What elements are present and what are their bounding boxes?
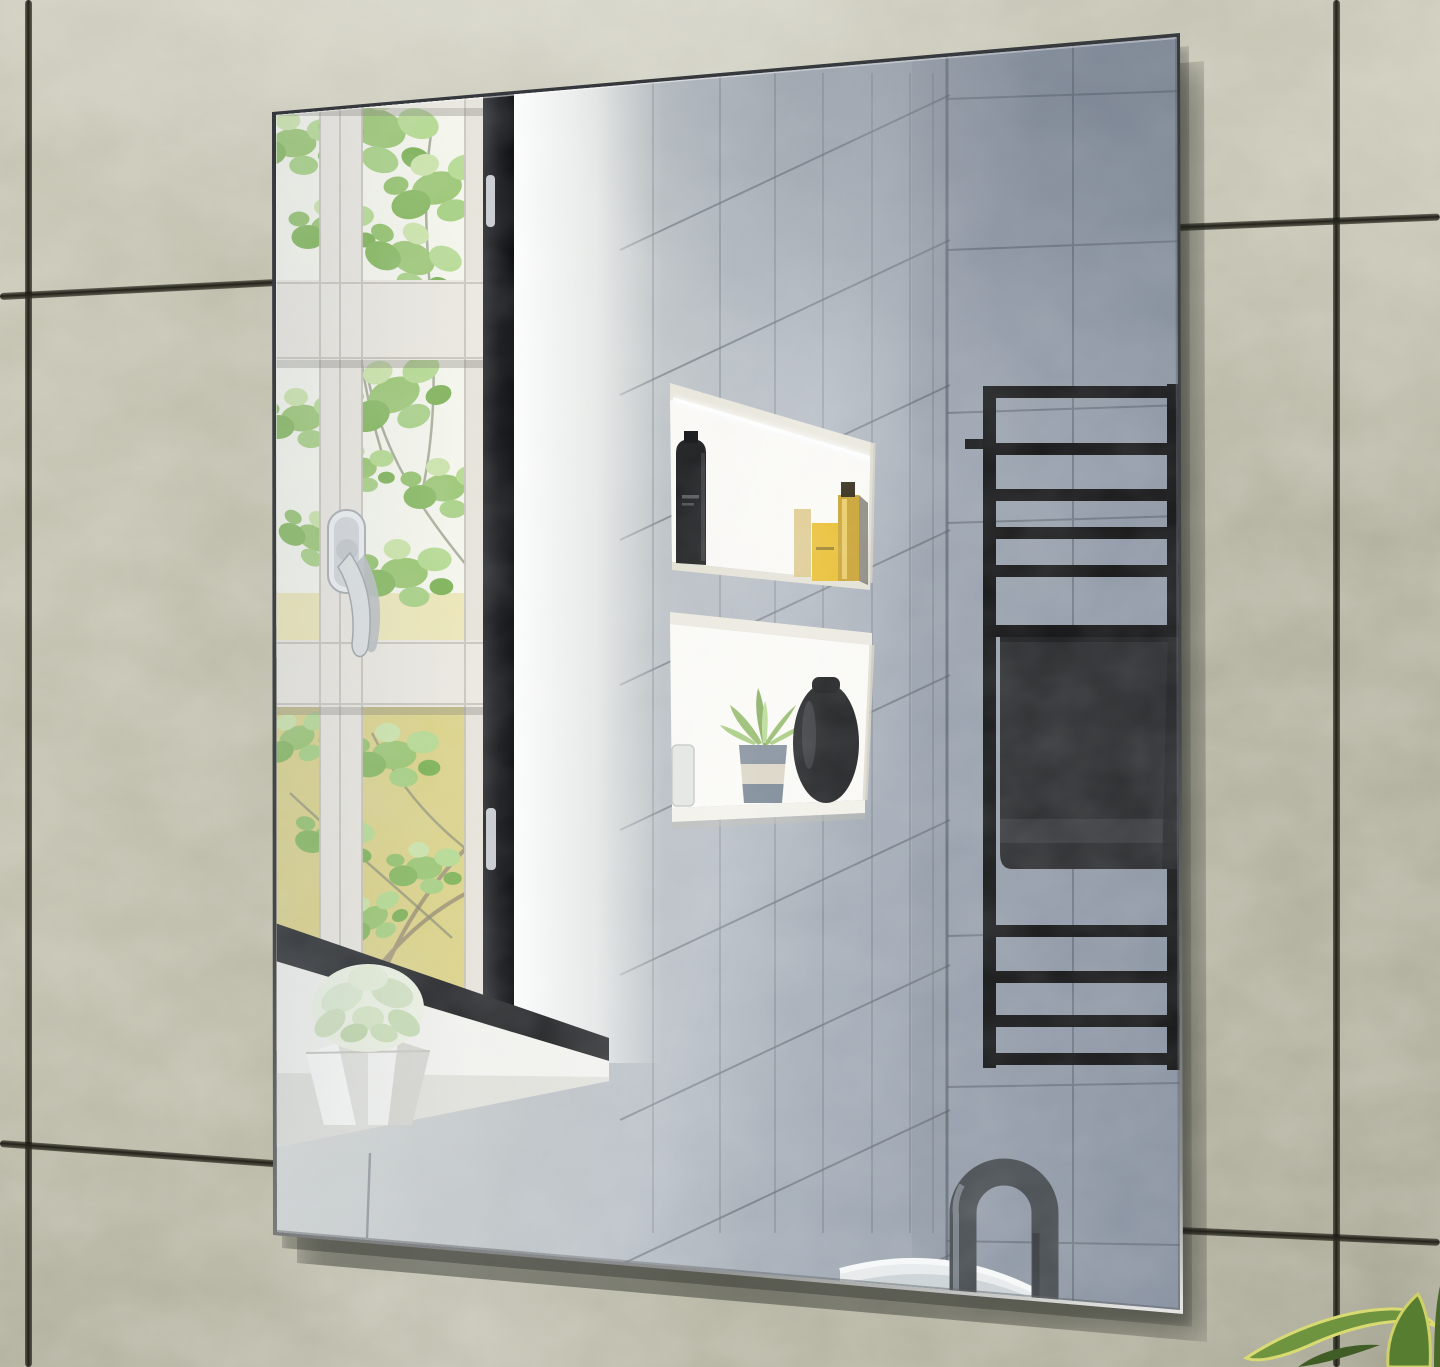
grout-line-left-vertical — [25, 0, 32, 1367]
glass-gleam — [272, 33, 1183, 1314]
wall-mirror — [272, 33, 1183, 1314]
mirror-glass — [272, 33, 1183, 1314]
grout-line-right-vertical — [1333, 0, 1340, 1367]
product-photo-stage — [0, 0, 1440, 1367]
snake-plant-leaves — [1238, 1258, 1440, 1367]
snake-plant-leaf-upright — [1388, 1294, 1431, 1367]
